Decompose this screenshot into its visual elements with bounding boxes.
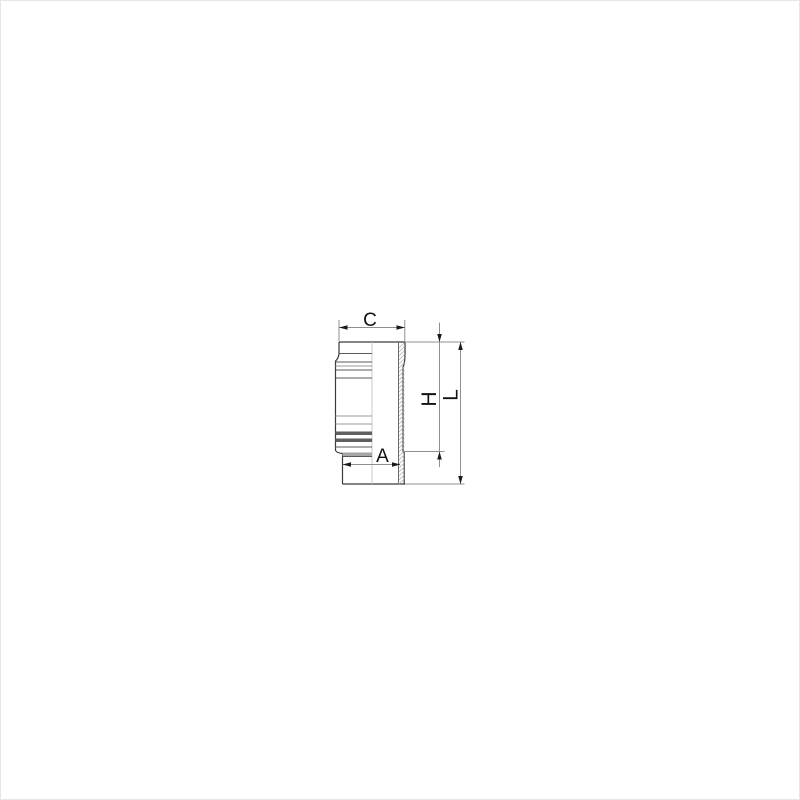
seal-groove-band bbox=[336, 432, 373, 436]
arrowhead-left bbox=[343, 462, 352, 467]
dimension-label-H: H bbox=[418, 391, 441, 406]
dimension-label-A: A bbox=[376, 446, 389, 467]
dimension-label-L: L bbox=[440, 389, 463, 401]
dimension-label-C: C bbox=[363, 310, 377, 331]
dimension-C: C bbox=[339, 310, 405, 341]
arrowhead-left bbox=[339, 325, 348, 330]
liner-grooves bbox=[336, 354, 373, 457]
seal-groove-band bbox=[336, 439, 373, 443]
dimension-H: H bbox=[404, 323, 445, 468]
liner-outline bbox=[336, 342, 406, 484]
drawing-page: C H L A bbox=[0, 0, 800, 800]
arrowhead-right bbox=[392, 462, 401, 467]
liner-left-profile bbox=[336, 342, 343, 484]
arrowhead-top bbox=[458, 342, 463, 350]
arrowhead-bottom bbox=[458, 476, 463, 484]
arrowhead-top bbox=[437, 334, 442, 342]
arrowhead-right bbox=[397, 325, 406, 330]
cylinder-liner-drawing: C H L A bbox=[1, 1, 799, 799]
dimension-L: L bbox=[405, 342, 465, 484]
seal-groove-band bbox=[343, 453, 373, 457]
arrowhead-bottom bbox=[437, 452, 442, 460]
